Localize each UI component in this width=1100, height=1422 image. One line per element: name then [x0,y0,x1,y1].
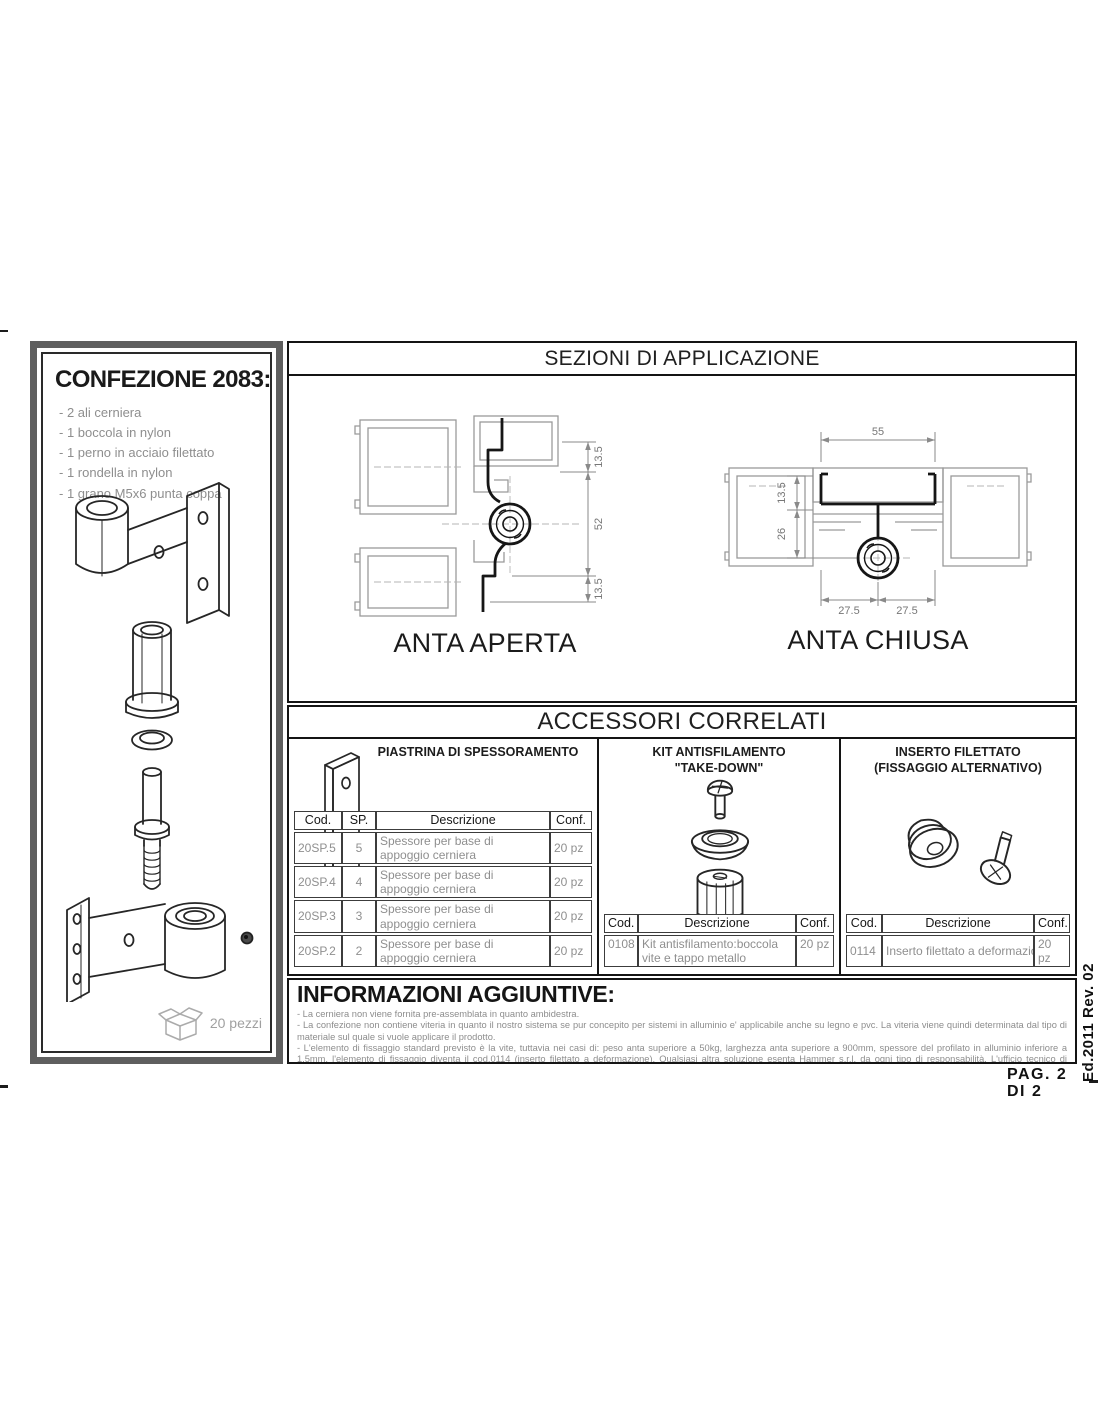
confezione-item: - 1 perno in acciaio filettato [59,443,264,463]
dim-label: 13.5 [593,578,605,599]
exploded-hinge-drawing [47,472,259,1002]
cell-conf: 20 pz [1034,935,1070,967]
kit-title-line1: KIT ANTISFILAMENTO [599,744,839,760]
cell-cod: 0114 [846,935,882,967]
piastrina-table: Cod. SP. Descrizione Conf. 20SP.5 5 Spes… [294,809,592,969]
col-header: Descrizione [882,914,1034,933]
dim-label: 13.5 [776,482,788,503]
col-header: Conf. [1034,914,1070,933]
table-row: 20SP.2 2 Spessore per base di appoggio c… [294,935,592,967]
inserto-table: Cod. Descrizione Conf. 0114 Inserto file… [846,912,1070,969]
cell-cod: 20SP.5 [294,832,342,864]
informazioni-title: INFORMAZIONI AGGIUNTIVE: [297,981,1067,1008]
kit-table: Cod. Descrizione Conf. 0108 Kit antisfil… [604,912,834,969]
cell-desc: Spessore per base di appoggio cerniera [376,832,550,864]
confezione-panel: CONFEZIONE 2083: - 2 ali cerniera - 1 bo… [30,341,283,1064]
col-header: Cod. [604,914,638,933]
confezione-title: CONFEZIONE 2083: [55,366,264,394]
sezioni-title: SEZIONI DI APPLICAZIONE [289,343,1075,376]
confezione-item: - 1 boccola in nylon [59,423,264,443]
edition-revision-label: Ed.2011 Rev. 02 [1080,952,1097,1082]
pieces-row: 20 pezzi [157,1003,262,1043]
cell-sp: 4 [342,866,376,898]
kit-title: KIT ANTISFILAMENTO "TAKE-DOWN" [599,744,839,777]
cell-sp: 5 [342,832,376,864]
crop-mark [0,330,8,332]
table-row: 0108 Kit antisfilamento:boccola vite e t… [604,935,834,967]
table-row: 20SP.4 4 Spessore per base di appoggio c… [294,866,592,898]
cell-cod: 20SP.2 [294,935,342,967]
informazioni-bullets: - La cerniera non viene fornita pre-asse… [297,1009,1067,1064]
dim-label: 13.5 [593,446,605,467]
cell-conf: 20 pz [550,866,592,898]
sezioni-content: 13.5 52 13.5 ANTA APERTA [289,376,1075,659]
dim-label: 55 [872,426,884,438]
sezioni-box: SEZIONI DI APPLICAZIONE [287,341,1077,703]
table-row: 20SP.3 3 Spessore per base di appoggio c… [294,900,592,932]
inserto-title-line1: INSERTO FILETTATO [841,744,1075,760]
confezione-panel-inner: CONFEZIONE 2083: - 2 ali cerniera - 1 bo… [41,352,272,1053]
cell-conf: 20 pz [796,935,834,967]
col-header: Conf. [796,914,834,933]
dim-label: 27.5 [838,605,859,617]
piastrina-panel: PIASTRINA DI SPESSORAMENTO Cod. [289,739,599,974]
cell-sp: 3 [342,900,376,932]
cell-desc: Inserto filettato a deformazione + vite [882,935,1034,967]
dim-label: 52 [593,518,605,530]
dim-label: 26 [776,528,788,540]
col-header: Cod. [846,914,882,933]
cell-desc: Spessore per base di appoggio cerniera [376,935,550,967]
anta-aperta-drawing: 13.5 52 13.5 [350,406,620,626]
cell-conf: 20 pz [550,832,592,864]
info-bullet: - La cerniera non viene fornita pre-asse… [297,1009,1067,1020]
confezione-item: - 2 ali cerniera [59,403,264,423]
cell-conf: 20 pz [550,935,592,967]
cell-desc: Spessore per base di appoggio cerniera [376,900,550,932]
col-header: Cod. [294,811,342,830]
cell-desc: Spessore per base di appoggio cerniera [376,866,550,898]
anta-aperta-section: 13.5 52 13.5 ANTA APERTA [289,376,681,659]
anta-chiusa-label: ANTA CHIUSA [787,625,968,656]
cell-desc: Kit antisfilamento:boccola vite e tappo … [638,935,796,967]
kit-panel: KIT ANTISFILAMENTO "TAKE-DOWN" [599,739,841,974]
col-header: Descrizione [638,914,796,933]
crop-mark [0,1085,8,1088]
anta-aperta-label: ANTA APERTA [393,628,576,659]
cell-conf: 20 pz [550,900,592,932]
col-header: Conf. [550,811,592,830]
anta-chiusa-drawing: 55 13.5 26 27.5 27.5 [723,418,1033,623]
col-header: SP. [342,811,376,830]
pieces-label: 20 pezzi [210,1015,262,1031]
piastrina-title: PIASTRINA DI SPESSORAMENTO [359,744,597,760]
accessori-box: ACCESSORI CORRELATI PIASTRINA DI SPESSOR… [287,705,1077,976]
anta-chiusa-section: 55 13.5 26 27.5 27.5 ANTA CHIUSA [681,376,1075,659]
inserto-panel: INSERTO FILETTATO (FISSAGGIO ALTERNATIVO… [841,739,1075,974]
info-bullet: - L'elemento di fissaggio standard previ… [297,1043,1067,1064]
informazioni-box: INFORMAZIONI AGGIUNTIVE: - La cerniera n… [287,978,1077,1064]
kit-drawing [665,775,775,925]
cell-sp: 2 [342,935,376,967]
col-header: Descrizione [376,811,550,830]
accessori-title: ACCESSORI CORRELATI [289,707,1075,739]
table-row: 0114 Inserto filettato a deformazione + … [846,935,1070,967]
table-row: 20SP.5 5 Spessore per base di appoggio c… [294,832,592,864]
inserto-drawing [875,791,1045,906]
page-number: PAG. 2 DI 2 [1007,1067,1089,1101]
inserto-title: INSERTO FILETTATO (FISSAGGIO ALTERNATIVO… [841,744,1075,777]
box-icon [157,1003,203,1043]
dim-label: 27.5 [896,605,917,617]
info-bullet: - La confezione non contiene viteria in … [297,1020,1067,1043]
cell-cod: 20SP.4 [294,866,342,898]
inserto-title-line2: (FISSAGGIO ALTERNATIVO) [841,760,1075,776]
cell-cod: 20SP.3 [294,900,342,932]
cell-cod: 0108 [604,935,638,967]
